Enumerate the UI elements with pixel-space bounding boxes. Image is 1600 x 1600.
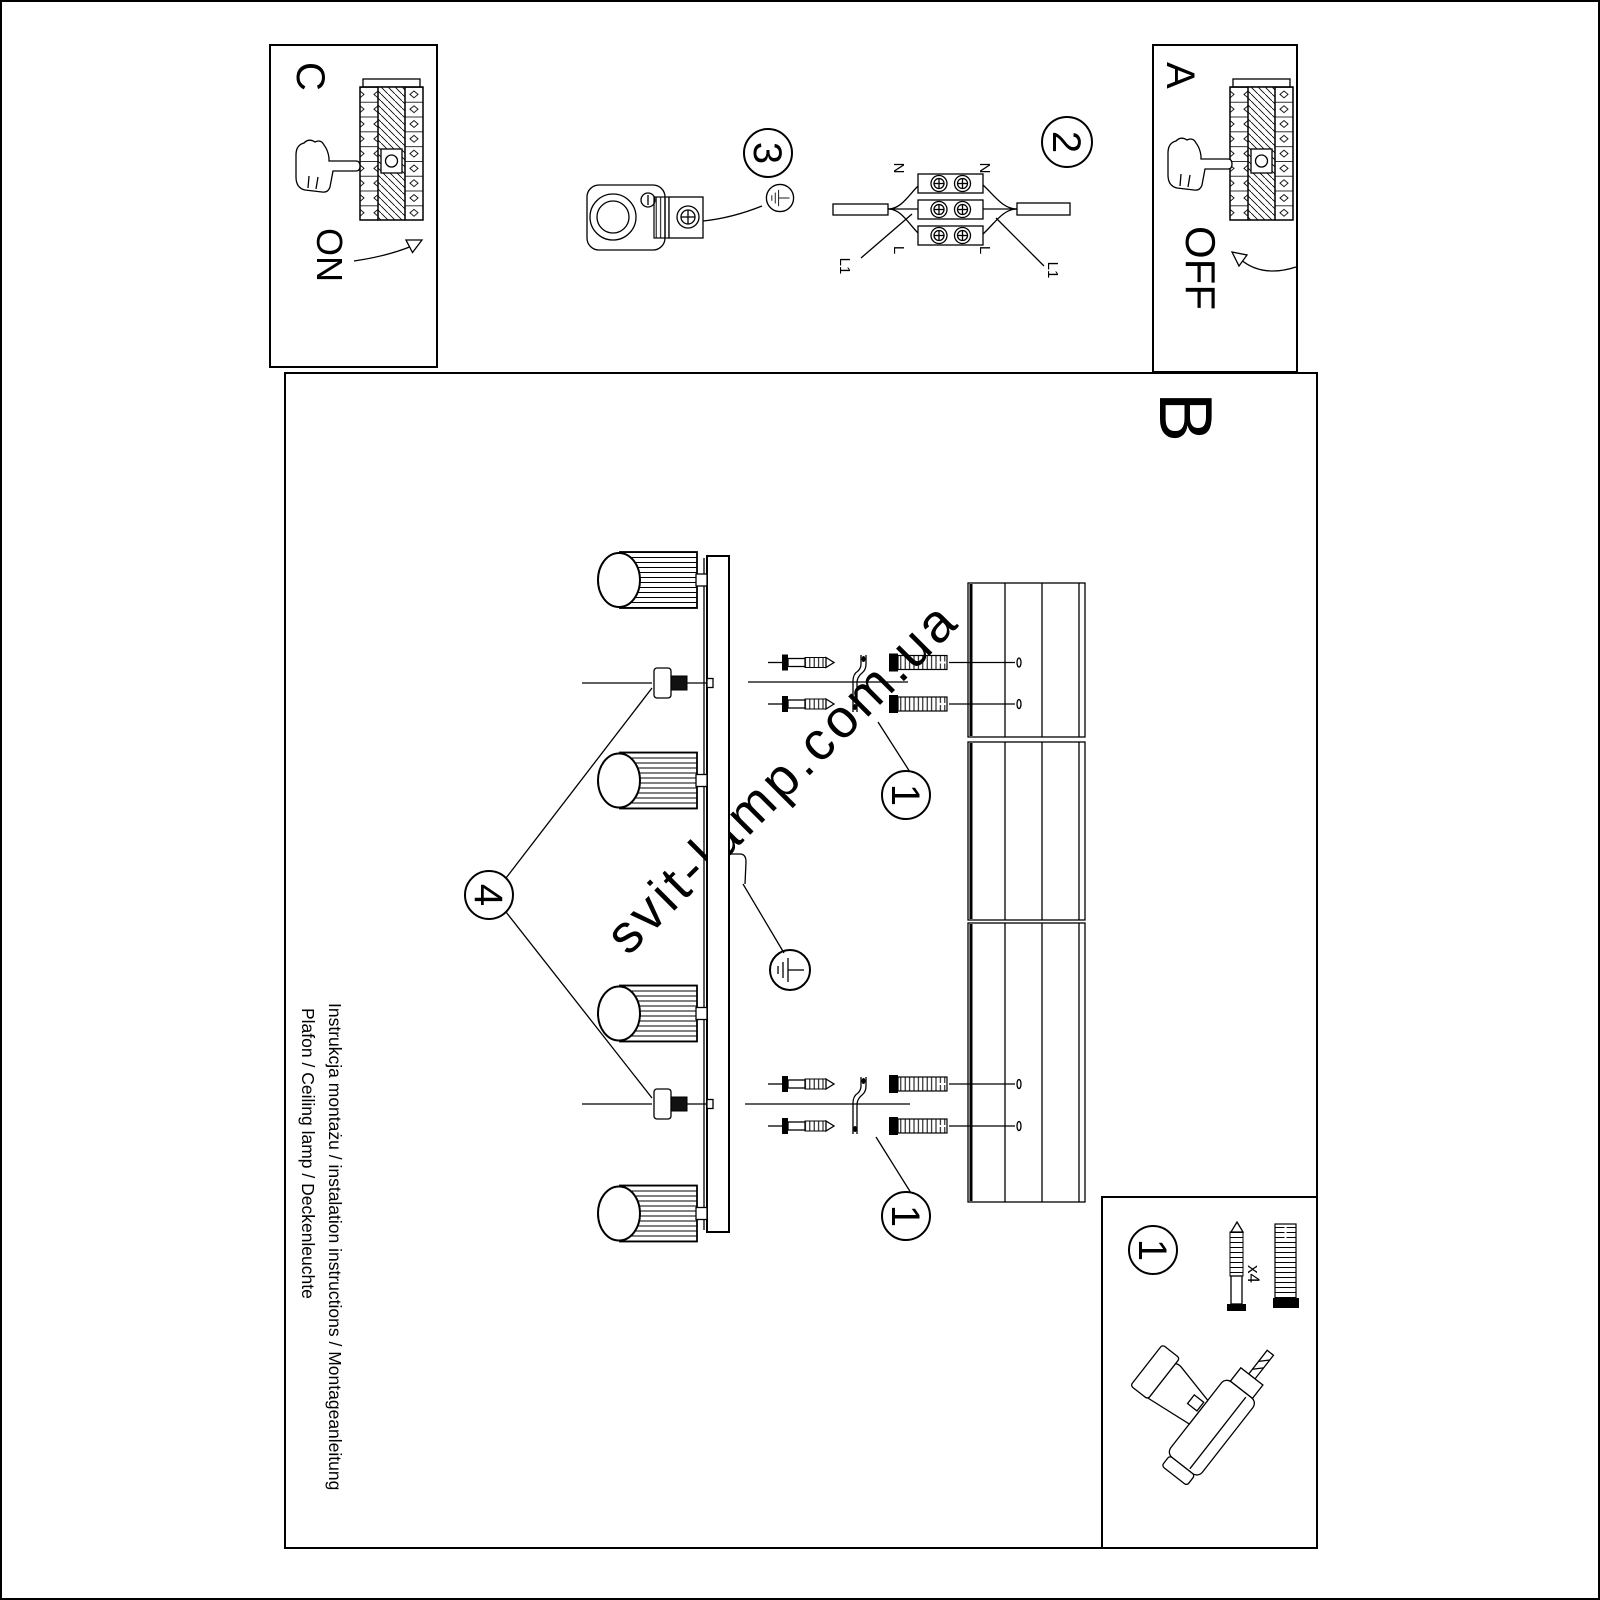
wire-label-l-bottom: L bbox=[890, 246, 907, 254]
wire-label-n-top: N bbox=[976, 163, 993, 174]
step-a-box: A OFF bbox=[1153, 45, 1297, 372]
wall-plug-icon bbox=[889, 654, 947, 672]
wall-plug-icon bbox=[889, 695, 947, 713]
wall-plug-icon bbox=[889, 1117, 947, 1135]
cable bbox=[833, 204, 888, 215]
step-a-label: A bbox=[1158, 62, 1202, 89]
lamp-head-icon bbox=[598, 1186, 707, 1242]
lamp-head-icon bbox=[598, 986, 707, 1042]
step-c-action: ON bbox=[309, 228, 350, 282]
step-1-badge: 1 bbox=[883, 784, 927, 806]
quantity-label: x4 bbox=[1244, 1265, 1263, 1283]
wire-label-l1-bottom: L1 bbox=[836, 258, 853, 275]
footer-title-line1: Instrukcja montażu / instalation instruc… bbox=[325, 1003, 345, 1490]
parts-badge: 1 bbox=[1130, 1239, 1174, 1261]
wire-label-n-bottom: N bbox=[890, 163, 907, 174]
wire-label-l1-top: L1 bbox=[1044, 262, 1061, 279]
step-4-badge: 4 bbox=[466, 884, 510, 906]
parts-box: 1 x4 bbox=[1102, 1197, 1317, 1548]
step-1-badge: 1 bbox=[883, 1205, 927, 1227]
step-c-box: C ON bbox=[270, 45, 437, 367]
wall-plug-icon bbox=[1273, 1224, 1299, 1308]
footer-title-line2: Plafon / Ceiling lamp / Deckenleuchte bbox=[298, 1008, 318, 1299]
step-a-action: OFF bbox=[1177, 226, 1224, 310]
lamp-bar bbox=[707, 556, 729, 1232]
lamp-head-icon bbox=[598, 552, 707, 608]
wire-label-l-top: L bbox=[976, 246, 993, 254]
terminal-block bbox=[918, 174, 983, 193]
breaker-panel-icon bbox=[360, 79, 423, 220]
step-3-badge: 3 bbox=[745, 142, 789, 164]
wall-plug-icon bbox=[889, 1075, 947, 1093]
cable bbox=[1017, 203, 1070, 215]
lamp-head-icon bbox=[598, 753, 707, 809]
terminal-block bbox=[918, 226, 983, 245]
breaker-panel-icon bbox=[1230, 79, 1293, 220]
instruction-sheet-page: svit-lamp.com.ua A OFF C ON 2 bbox=[0, 0, 1600, 1600]
step-2-badge: 2 bbox=[1044, 131, 1088, 153]
step-b-label: B bbox=[1144, 392, 1228, 442]
step-c-label: C bbox=[288, 62, 332, 91]
rotated-sheet: svit-lamp.com.ua A OFF C ON 2 bbox=[0, 0, 1600, 1600]
terminal-block bbox=[918, 200, 983, 219]
